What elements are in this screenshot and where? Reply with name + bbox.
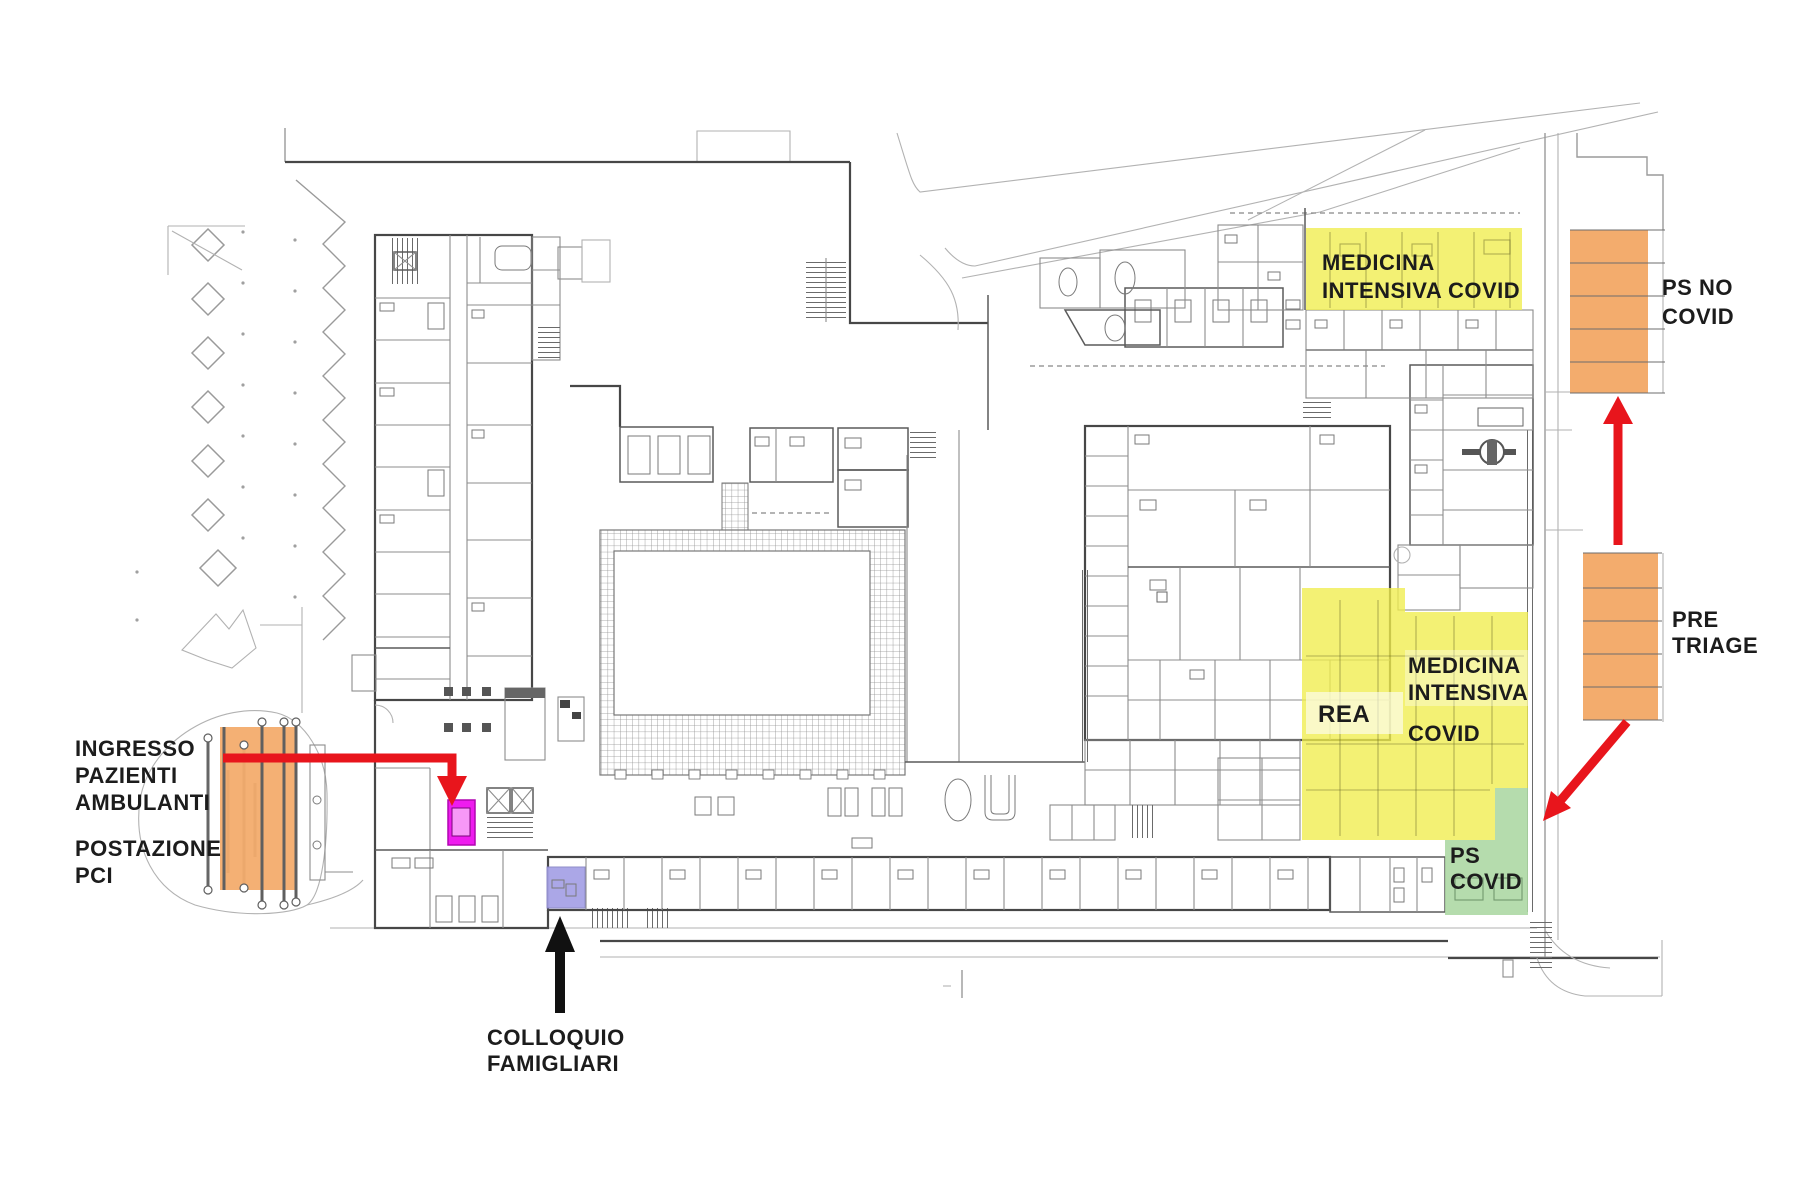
desk-room-row bbox=[1135, 300, 1267, 322]
label-med-int-covid-top-line2: INTENSIVA COVID bbox=[1322, 278, 1520, 303]
label-ingresso-line1: INGRESSO bbox=[75, 736, 195, 761]
road-diagonal-lower bbox=[945, 112, 1658, 266]
label-ingresso-line3: AMBULANTI bbox=[75, 790, 210, 815]
label-ps-covid-line2: COVID bbox=[1450, 869, 1522, 894]
zone-pre-triage bbox=[1583, 553, 1658, 720]
label-pre-triage-line1: PRE bbox=[1672, 607, 1719, 632]
label-med-int-covid-mid-line3: COVID bbox=[1408, 721, 1480, 746]
parking-diamonds bbox=[192, 229, 236, 586]
label-ingresso-line2: PAZIENTI bbox=[75, 763, 178, 788]
zones-layer bbox=[204, 228, 1665, 915]
label-med-int-covid-mid-line1: MEDICINA bbox=[1408, 653, 1521, 678]
label-rea: REA bbox=[1318, 701, 1370, 728]
label-med-int-covid-top-line1: MEDICINA bbox=[1322, 250, 1435, 275]
wing-desks bbox=[594, 870, 1293, 879]
corner-mark bbox=[168, 226, 245, 275]
label-ps-covid-line1: PS bbox=[1450, 843, 1480, 868]
zigzag-boundary bbox=[296, 180, 345, 640]
labels-layer: INGRESSO PAZIENTI AMBULANTI POSTAZIONE P… bbox=[75, 250, 1758, 1076]
label-colloquio-line2: FAMIGLIARI bbox=[487, 1051, 619, 1076]
arrow-ps-covid bbox=[1543, 722, 1627, 821]
road-diagonal-upper bbox=[897, 103, 1640, 192]
label-pre-triage-line2: TRIAGE bbox=[1672, 633, 1758, 658]
arrow-colloquio-famigliari bbox=[545, 916, 575, 1013]
hall-benches bbox=[695, 788, 902, 848]
floor-plan-page: INGRESSO PAZIENTI AMBULANTI POSTAZIONE P… bbox=[0, 0, 1799, 1199]
label-ps-no-covid-line1: PS NO bbox=[1662, 275, 1733, 300]
label-colloquio-line1: COLLOQUIO bbox=[487, 1025, 625, 1050]
label-postazione-line2: PCI bbox=[75, 863, 113, 888]
label-postazione-line1: POSTAZIONE bbox=[75, 836, 221, 861]
left-wing bbox=[375, 235, 610, 700]
right-strip-rooms bbox=[1394, 365, 1533, 610]
lobby-benches bbox=[392, 858, 498, 922]
landscape-shape bbox=[182, 610, 256, 668]
entrance-columns bbox=[444, 687, 491, 732]
site-dots bbox=[135, 230, 296, 621]
label-med-int-covid-mid-line2: INTENSIVA bbox=[1408, 680, 1528, 705]
label-ps-no-covid-line2: COVID bbox=[1662, 304, 1734, 329]
floor-plan-drawing: INGRESSO PAZIENTI AMBULANTI POSTAZIONE P… bbox=[0, 0, 1799, 1199]
arrow-ps-no-covid bbox=[1603, 396, 1633, 545]
wing-furniture bbox=[380, 303, 484, 611]
zone-ps-no-covid bbox=[1570, 230, 1648, 393]
